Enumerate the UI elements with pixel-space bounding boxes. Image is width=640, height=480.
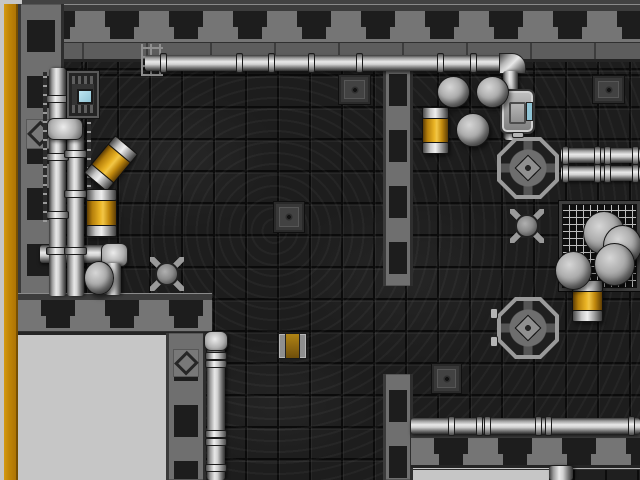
crate[interactable] — [274, 202, 304, 232]
pipe-coupling — [628, 416, 635, 436]
pipe-coupling — [205, 360, 227, 368]
console[interactable] — [67, 71, 99, 118]
teleport-pad[interactable] — [497, 297, 559, 359]
wall-rail — [43, 72, 47, 222]
crate-amber[interactable] — [278, 333, 307, 359]
pipe-bottom — [411, 418, 640, 434]
turret-mine[interactable] — [510, 209, 544, 243]
pipe-coupling — [594, 164, 601, 183]
pipe-coupling — [268, 53, 275, 73]
pipe-coupling — [205, 430, 227, 438]
pipe-coupling — [470, 53, 477, 73]
wall-divider-lower — [383, 374, 413, 480]
pipe-top — [145, 55, 503, 71]
boulder[interactable] — [437, 76, 470, 108]
pad-tab — [490, 336, 498, 347]
wall-room-b-bottom — [411, 431, 640, 468]
pipe-coupling — [46, 95, 69, 103]
boulder[interactable] — [555, 251, 592, 290]
barrel-orange[interactable] — [86, 189, 117, 237]
crate[interactable] — [432, 364, 461, 393]
crate[interactable] — [593, 76, 624, 103]
pipe-coupling — [448, 416, 455, 436]
pipe-coupling — [308, 53, 315, 73]
pipe-coupling — [632, 146, 639, 165]
pipe-elbow-left — [47, 118, 83, 140]
pipe-coupling — [604, 164, 611, 183]
pipe-coupling — [205, 464, 227, 472]
teleport-pad[interactable] — [497, 137, 559, 199]
pipe-coupling — [476, 416, 483, 436]
pipe-coupling — [545, 416, 552, 436]
pipe-coupling — [64, 247, 87, 255]
crate[interactable] — [339, 75, 370, 104]
gold-border — [4, 4, 18, 480]
boulder[interactable] — [456, 113, 490, 147]
boulder[interactable] — [84, 261, 114, 295]
pipe-coupling — [356, 53, 363, 73]
pipe-corridor-cap — [204, 331, 228, 351]
pipe-coupling — [64, 190, 87, 198]
pipe-coupling — [604, 146, 611, 165]
pipe-coupling — [160, 53, 167, 73]
boulder[interactable] — [594, 243, 635, 286]
pipe-coupling — [64, 150, 87, 158]
pipe-coupling — [205, 438, 227, 446]
wall-divider-upper — [383, 58, 413, 286]
game-viewport[interactable] — [0, 0, 640, 480]
pipe-coupling — [205, 352, 227, 360]
pad-tab — [490, 308, 498, 319]
barrel-orange[interactable] — [422, 107, 449, 154]
pad-tab — [512, 132, 524, 138]
pipe-coupling — [632, 164, 639, 183]
turret-mine[interactable] — [150, 257, 184, 291]
wall-room-a-bottom — [18, 293, 212, 335]
pipe-coupling — [562, 164, 569, 183]
pipe-coupling — [484, 416, 491, 436]
diamond-ornament — [173, 349, 199, 377]
pipe-coupling — [437, 53, 444, 73]
pipe-stub-bottom — [549, 466, 573, 480]
pipe-coupling — [562, 146, 569, 165]
pipe-coupling — [46, 211, 69, 219]
boulder[interactable] — [476, 76, 509, 108]
wall-top — [18, 4, 640, 62]
pipe-coupling — [535, 416, 542, 436]
pipe-coupling — [594, 146, 601, 165]
void-bottom-left — [18, 333, 168, 480]
pipe-coupling — [236, 53, 243, 73]
